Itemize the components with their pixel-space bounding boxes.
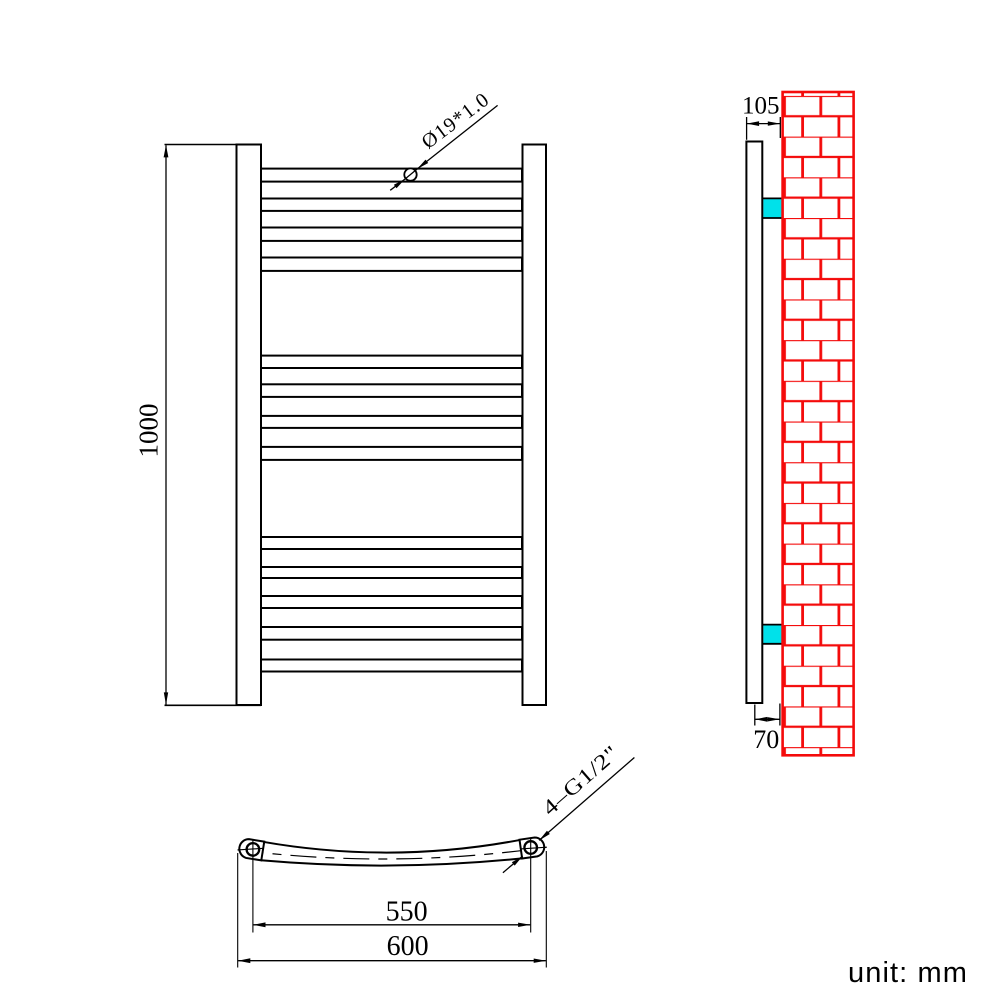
svg-text:550: 550 bbox=[386, 897, 428, 928]
svg-text:600: 600 bbox=[387, 931, 429, 962]
svg-text:unit: mm: unit: mm bbox=[848, 957, 968, 989]
svg-text:4–G1/2": 4–G1/2" bbox=[538, 741, 624, 820]
svg-text:105: 105 bbox=[742, 93, 780, 120]
svg-text:Ø19*1.0: Ø19*1.0 bbox=[418, 88, 494, 153]
svg-text:70: 70 bbox=[753, 725, 779, 754]
svg-text:1000: 1000 bbox=[134, 404, 164, 458]
